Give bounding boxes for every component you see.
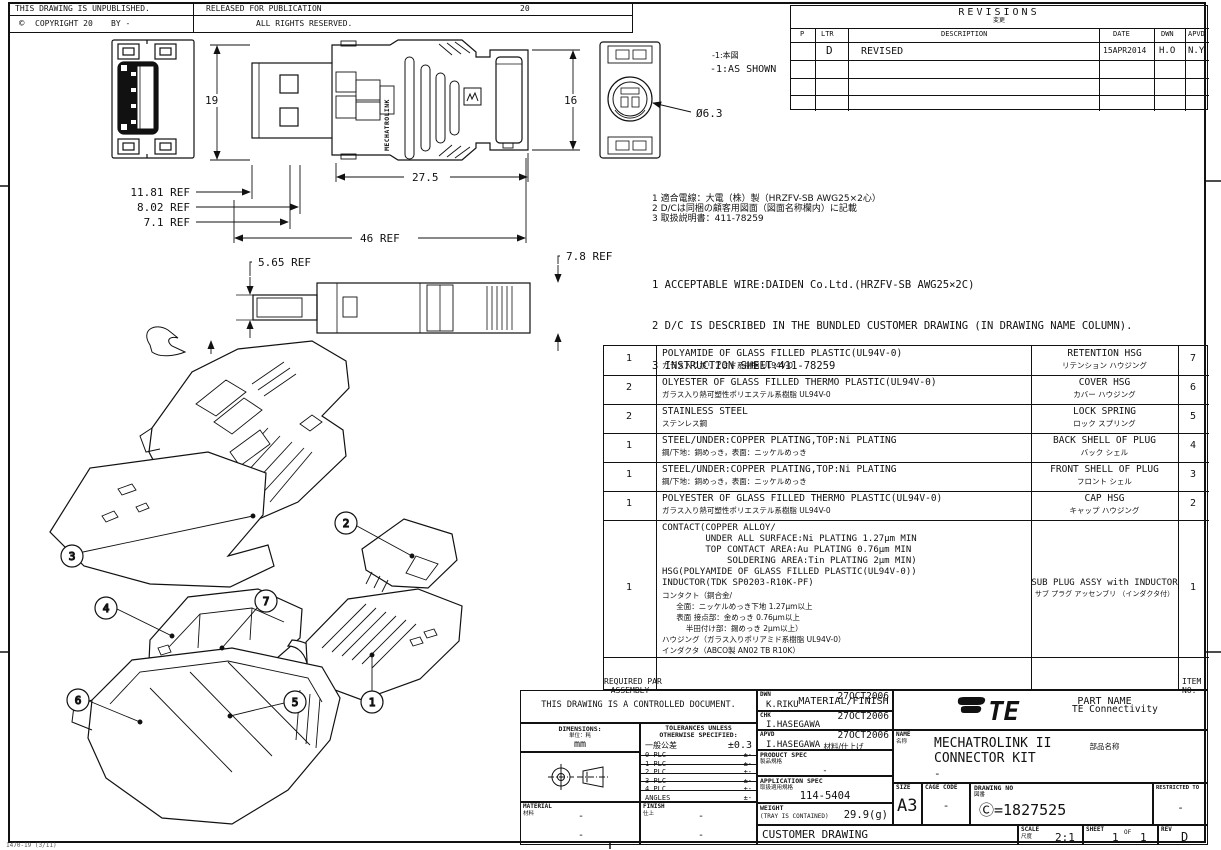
dimensions-cell: DIMENSIONS: 単位：粍 mm bbox=[520, 723, 640, 752]
rev-col-p: P bbox=[800, 31, 804, 39]
bom-material-en: OLYESTER OF GLASS FILLED THERMO PLASTIC(… bbox=[662, 378, 937, 389]
bom-qty: 1 bbox=[626, 498, 632, 509]
sheet-cell: SHEET 1 OF 1 bbox=[1083, 825, 1158, 845]
svg-text:1: 1 bbox=[369, 696, 376, 709]
copyright-icon: © bbox=[19, 19, 24, 29]
bom-material-jp: ガラス入りポリアミド系樹脂 UL94V-0 bbox=[662, 362, 793, 370]
bom-name-jp: サブ プラグ アッセンブリ （インダクタ付） bbox=[1031, 591, 1178, 599]
scale-cell: SCALE 尺度 2:1 bbox=[1018, 825, 1083, 845]
bom-name-en: SUB PLUG ASSY with INDUCTOR bbox=[1031, 578, 1178, 588]
customer-drawing-cell: CUSTOMER DRAWING bbox=[757, 825, 1018, 845]
rev-col-dwn: DWN bbox=[1161, 31, 1174, 39]
bom-name-jp: リテンション ハウジング bbox=[1031, 362, 1178, 370]
bom-material-en: POLYAMIDE OF GLASS FILLED PLASTIC(UL94V-… bbox=[662, 349, 902, 360]
bom-material-en: STEEL/UNDER:COPPER PLATING,TOP:Ni PLATIN… bbox=[662, 465, 897, 476]
third-angle-projection-icon bbox=[521, 753, 639, 801]
svg-text:19: 19 bbox=[205, 94, 218, 107]
rev-row-ltr: D bbox=[826, 45, 833, 57]
application-spec-cell: APPLICATION SPEC 取扱適用規格 114-5404 bbox=[757, 776, 893, 803]
name-cell: NAME 名称 MECHATROLINK II CONNECTOR KIT - bbox=[893, 730, 1208, 783]
svg-text:27.5: 27.5 bbox=[412, 171, 439, 184]
view-note-jp: -1:本図 bbox=[712, 52, 739, 61]
copyright-text: COPYRIGHT 20 bbox=[35, 20, 93, 29]
bom-qty: 1 bbox=[626, 469, 632, 480]
projection-cell bbox=[520, 752, 640, 802]
svg-text:11.81 REF: 11.81 REF bbox=[130, 186, 190, 199]
bom-material-en: STEEL/UNDER:COPPER PLATING,TOP:Ni PLATIN… bbox=[662, 436, 897, 447]
svg-text:3: 3 bbox=[69, 550, 76, 563]
bom-material-en: POLYESTER OF GLASS FILLED THERMO PLASTIC… bbox=[662, 494, 942, 505]
revisions-title-jp: 変更 bbox=[791, 18, 1207, 25]
bom-name-jp: フロント シェル bbox=[1031, 478, 1178, 486]
header-unpublished-cell: THIS DRAWING IS UNPUBLISHED. bbox=[8, 2, 194, 16]
apvd-cell: APVD I.HASEGAWA 27OCT2006 bbox=[757, 730, 893, 750]
svg-text:6: 6 bbox=[75, 694, 82, 707]
chk-cell: CHK I.HASEGAWA 27OCT2006 bbox=[757, 711, 893, 730]
bom-item: 6 bbox=[1190, 382, 1196, 393]
restricted-cell: RESTRICTED TO - bbox=[1153, 783, 1208, 825]
bom-material-jp: ガラス入り熱可塑性ポリエステル系樹脂 UL94V-0 bbox=[662, 391, 831, 399]
bom-material-jp: コンタクト（銅合金/ 全面：ニッケルめっき下地 1.27µm以上 表面 接点部：… bbox=[662, 590, 1030, 656]
svg-text:5.65 REF: 5.65 REF bbox=[258, 256, 311, 269]
rev-col-ltr: LTR bbox=[821, 31, 834, 39]
logo-cell: TE TE Connectivity bbox=[893, 690, 1208, 730]
cage-code-cell: CAGE CODE - bbox=[922, 783, 970, 825]
rights-text: ALL RIGHTS RESERVED. bbox=[256, 20, 352, 29]
tolerance-rows: 一般公差±0.3 0 PLC±- 1 PLC±- 2 PLC±- 3 PLC±-… bbox=[641, 740, 756, 803]
bom-material-en: CONTACT(COPPER ALLOY/ UNDER ALL SURFACE:… bbox=[662, 523, 1030, 589]
svg-text:8.02 REF: 8.02 REF bbox=[137, 201, 190, 214]
te-logo: TE bbox=[956, 696, 1034, 726]
exploded-front-shell bbox=[50, 452, 274, 587]
exploded-cover-bottom bbox=[72, 648, 340, 824]
dwn-cell: DWN K.RIKU 27OCT2006 bbox=[757, 690, 893, 711]
rev-row-dwn: H.O bbox=[1159, 46, 1175, 56]
bom-item: 1 bbox=[1190, 582, 1196, 593]
bom-item: 2 bbox=[1190, 498, 1196, 509]
exploded-view: 3 2 4 7 1 6 5 bbox=[50, 341, 462, 824]
view-note-en: -1:AS SHOWN bbox=[710, 64, 776, 75]
title-block: THIS DRAWING IS A CONTROLLED DOCUMENT. D… bbox=[520, 690, 1208, 845]
brand-text: TE Connectivity bbox=[1072, 705, 1158, 716]
released-year: 20 bbox=[520, 5, 530, 14]
released-text: RELEASED FOR PUBLICATION bbox=[206, 5, 322, 14]
header-rights-cell: ALL RIGHTS RESERVED. bbox=[193, 15, 633, 33]
notes-japanese: 1 適合電線：大電（株）製（HRZFV-SB AWG25×2心） 2 D/Cは同… bbox=[652, 194, 881, 224]
weight-cell: WEIGHT (TRAY IS CONTAINED) 29.9(g) bbox=[757, 803, 893, 825]
svg-text:7: 7 bbox=[263, 595, 270, 608]
unpublished-text: THIS DRAWING IS UNPUBLISHED. bbox=[15, 5, 150, 14]
svg-text:Ø6.3: Ø6.3 bbox=[696, 107, 723, 120]
bom-name-en: CAP HSG bbox=[1031, 494, 1178, 505]
bom-qty: 2 bbox=[626, 411, 632, 422]
bom-material-jp: ステンレス鋼 bbox=[662, 420, 707, 428]
bom-qty: 1 bbox=[626, 440, 632, 451]
bom-name-en: FRONT SHELL OF PLUG bbox=[1031, 465, 1178, 476]
part-title-line2: CONNECTOR KIT bbox=[934, 752, 1036, 767]
drawing-sheet: MECHATROLINK bbox=[0, 0, 1221, 849]
bom-name-en: RETENTION HSG bbox=[1031, 349, 1178, 360]
finish-cell: FINISH 仕上 - - bbox=[640, 802, 757, 845]
bom-material-en: STAINLESS STEEL bbox=[662, 407, 748, 418]
bom-name-en: LOCK SPRING bbox=[1031, 407, 1178, 418]
tolerances-cell: TOLERANCES UNLESS OTHERWISE SPECIFIED: 一… bbox=[640, 723, 757, 802]
bom-name-jp: ロック スプリング bbox=[1031, 420, 1178, 428]
top-view bbox=[147, 283, 530, 356]
bom-material-jp: 鋼/下地：銅めっき，表面：ニッケルめっき bbox=[662, 449, 807, 457]
part-title-line3: - bbox=[934, 768, 941, 780]
rear-view bbox=[600, 42, 660, 158]
rev-row-date: 15APR2014 bbox=[1103, 47, 1146, 56]
rev-col-desc: DESCRIPTION bbox=[941, 31, 987, 39]
svg-text:2: 2 bbox=[343, 517, 350, 530]
rev-row-apvd: N.Y bbox=[1188, 46, 1204, 56]
svg-text:7.8 REF: 7.8 REF bbox=[566, 250, 612, 263]
dimension-lines bbox=[196, 45, 691, 354]
rev-col-apvd: APVD bbox=[1188, 31, 1205, 39]
material-cell: MATERIAL 材料 - - bbox=[520, 802, 640, 845]
part-title-line1: MECHATROLINK II bbox=[934, 737, 1051, 752]
header-copyright-cell: © COPYRIGHT 20 BY - bbox=[8, 15, 194, 33]
revisions-table: REVISIONS 変更 P LTR DESCRIPTION DATE DWN … bbox=[790, 5, 1208, 110]
bom-name-jp: バック シェル bbox=[1031, 449, 1178, 457]
svg-text:46 REF: 46 REF bbox=[360, 232, 400, 245]
bom-name-jp: カバー ハウジング bbox=[1031, 391, 1178, 399]
front-view bbox=[112, 40, 194, 158]
drawing-number: Ⓒ=1827525 bbox=[979, 802, 1066, 819]
bom-name-en: COVER HSG bbox=[1031, 378, 1178, 389]
drawing-no-cell: DRAWING NO 図番 Ⓒ=1827525 bbox=[970, 783, 1153, 825]
svg-text:7.1 REF: 7.1 REF bbox=[144, 216, 190, 229]
bom-qty: 1 bbox=[626, 582, 632, 593]
bom-item: 3 bbox=[1190, 469, 1196, 480]
svg-text:5: 5 bbox=[292, 696, 299, 709]
bom-item: 5 bbox=[1190, 411, 1196, 422]
bom-item: 7 bbox=[1190, 353, 1196, 364]
rev-cell: REV D bbox=[1158, 825, 1208, 845]
bom-qty: 1 bbox=[626, 353, 632, 364]
controlled-doc-cell: THIS DRAWING IS A CONTROLLED DOCUMENT. bbox=[520, 690, 757, 723]
bom-table: 1 POLYAMIDE OF GLASS FILLED PLASTIC(UL94… bbox=[603, 345, 1208, 690]
bom-material-jp: ガラス入り熱可塑性ポリエステル系樹脂 UL94V-0 bbox=[662, 507, 831, 515]
rev-col-date: DATE bbox=[1113, 31, 1130, 39]
svg-text:16: 16 bbox=[564, 94, 577, 107]
product-spec-cell: PRODUCT SPEC 製品規格 - bbox=[757, 750, 893, 776]
rev-row-desc: REVISED bbox=[861, 46, 903, 57]
bom-material-jp: 鋼/下地：銅めっき，表面：ニッケルめっき bbox=[662, 478, 807, 486]
bom-name-jp: キャップ ハウジング bbox=[1031, 507, 1178, 515]
header-released-cell: RELEASED FOR PUBLICATION 20 bbox=[193, 2, 633, 16]
by-text: BY - bbox=[111, 20, 130, 29]
bom-name-en: BACK SHELL OF PLUG bbox=[1031, 436, 1178, 447]
size-cell: SIZE A3 bbox=[893, 783, 922, 825]
bom-qty: 2 bbox=[626, 382, 632, 393]
svg-text:TE: TE bbox=[988, 697, 1020, 726]
exploded-cap-hsg bbox=[362, 519, 457, 592]
svg-text:4: 4 bbox=[103, 602, 110, 615]
brand-vertical-label: MECHATROLINK bbox=[383, 99, 391, 151]
bom-item: 4 bbox=[1190, 440, 1196, 451]
